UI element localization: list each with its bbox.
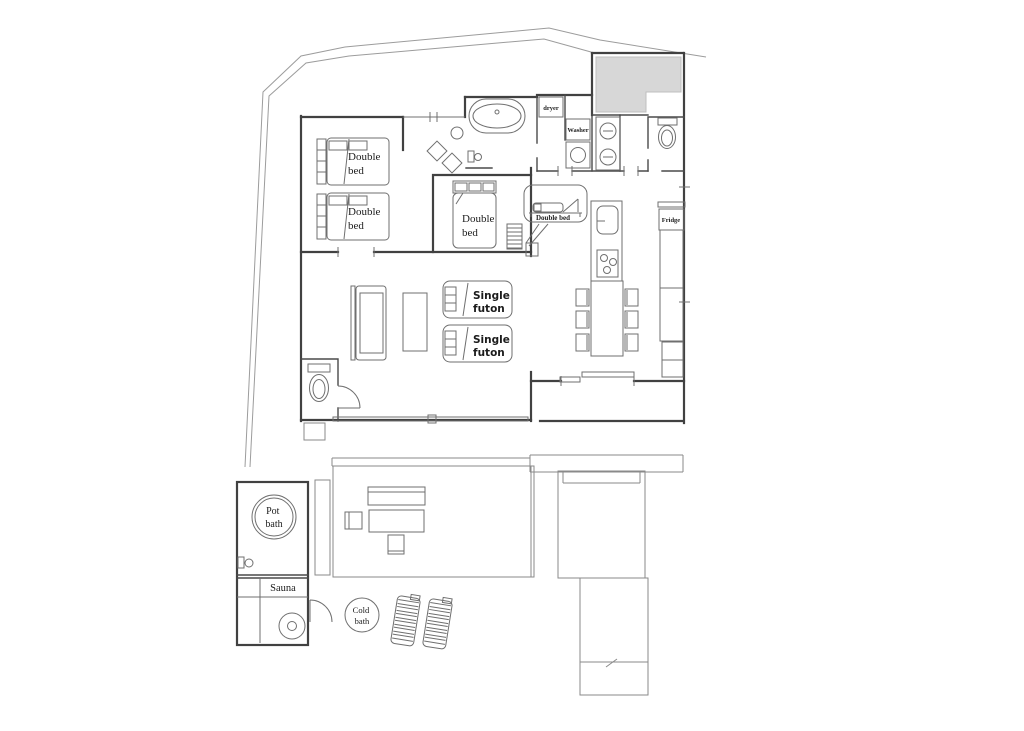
toilet-bottom-icon [308,364,330,402]
engawa-deck [304,423,683,577]
toilet-top-icon [658,118,677,149]
loft-ladder-icon [507,224,522,249]
dining-chairs-icon [576,289,638,351]
vanity-sinks-icon [596,117,620,170]
sauna-label: Sauna [270,583,296,594]
bathtub-icon [469,99,525,133]
cold-bath-icon [345,598,379,632]
entrance-mat [596,57,681,112]
floor-plan-page: Double bed Double bed dryer Washer [0,0,1024,731]
pot-bath-icon [252,495,296,539]
floor-plan-drawing: Double bed Double bed dryer Washer [0,0,1024,731]
kitchen-island-icon [591,201,622,281]
sauna-door-icon [310,600,332,622]
loft-bed-label: Double bed [536,214,570,222]
fridge-icon [658,202,685,230]
fridge-label: Fridge [662,217,681,224]
sauna-stove-icon [279,613,305,639]
dining-table-icon [591,281,623,356]
bath-fixture-icon [238,557,244,568]
shower-fixture-icon [468,151,482,162]
pot-bath-label: Pot bath [265,506,282,530]
sofa-icon [351,286,386,360]
coffee-table-icon [403,293,427,351]
washer-label: Washer [567,127,588,134]
sliding-doors [333,372,634,423]
walkway-path [558,471,648,695]
laundry-sink-icon [566,142,590,168]
deck-table-set-icon [345,487,425,554]
dryer-label: dryer [543,105,559,112]
hall-chairs-icon [427,127,463,173]
bath-house [237,482,332,645]
toilet-door-icon [338,386,360,408]
cold-bath-label: Cold bath [353,605,372,626]
kitchen-counters-icon [660,230,683,377]
lounger-2-icon [422,595,453,649]
lounger-1-icon [390,592,421,646]
